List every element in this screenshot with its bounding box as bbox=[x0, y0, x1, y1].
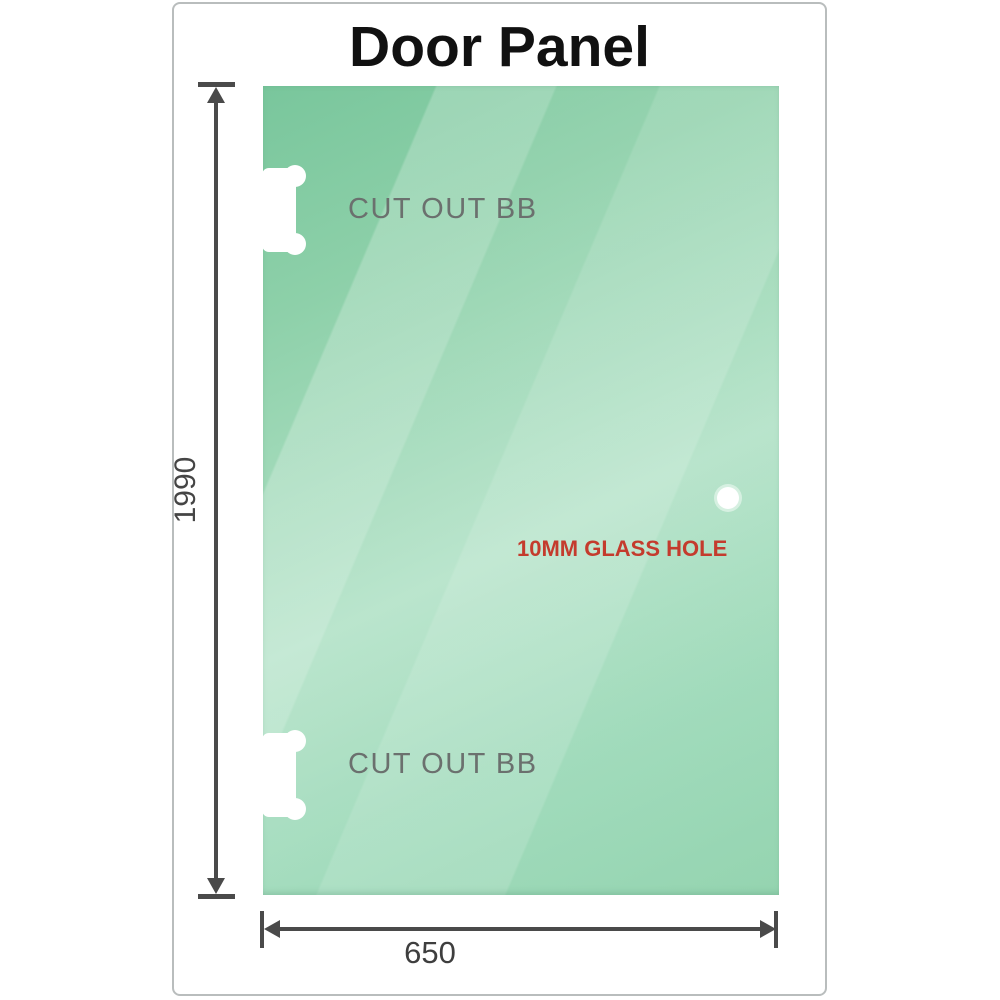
diagram-title: Door Panel bbox=[172, 14, 827, 80]
height-cap-bottom bbox=[198, 894, 235, 899]
width-arrow-left-icon bbox=[264, 920, 280, 938]
cutout-shape-icon bbox=[262, 164, 308, 256]
hinge-cutout-bottom bbox=[262, 729, 308, 821]
cutout-bottom-label: CUT OUT BB bbox=[348, 748, 538, 781]
width-dimension-line bbox=[279, 927, 761, 931]
glass-hole-label: 10MM GLASS HOLE bbox=[517, 536, 727, 562]
diagram-canvas: Door Panel CUT OUT BB CUT OUT BB 10MM GL… bbox=[0, 0, 1000, 1000]
width-dimension-label: 650 bbox=[390, 935, 470, 971]
glass-hole bbox=[717, 487, 739, 509]
height-arrow-down-icon bbox=[207, 878, 225, 894]
height-dimension-label: 1990 bbox=[169, 435, 201, 545]
cutout-shape-icon bbox=[262, 729, 308, 821]
height-dimension-line bbox=[214, 100, 218, 880]
width-cap-right bbox=[774, 911, 778, 948]
cutout-top-label: CUT OUT BB bbox=[348, 193, 538, 226]
hinge-cutout-top bbox=[262, 164, 308, 256]
